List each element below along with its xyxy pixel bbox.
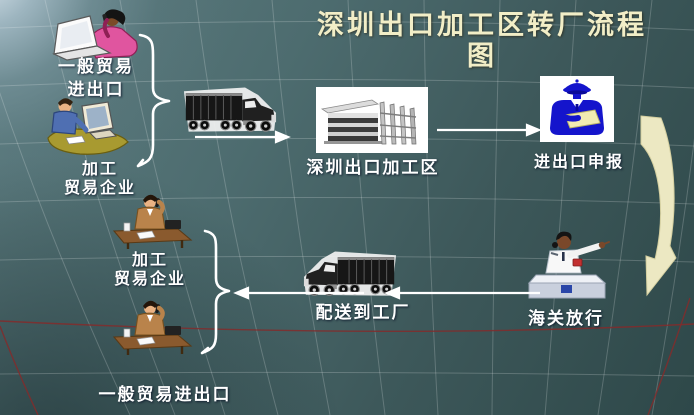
arrow-truck-to-enterprises [236, 288, 364, 298]
slide-flowchart: 深圳出口加工区转厂流程 图 一般贸易 进出口 加工 贸易企业 [0, 0, 694, 415]
arrow-zone-to-declare [437, 125, 539, 135]
arrow-release-to-truck [387, 288, 540, 298]
arrow-trade-to-zone [195, 132, 288, 142]
flow-arrows [0, 0, 694, 415]
